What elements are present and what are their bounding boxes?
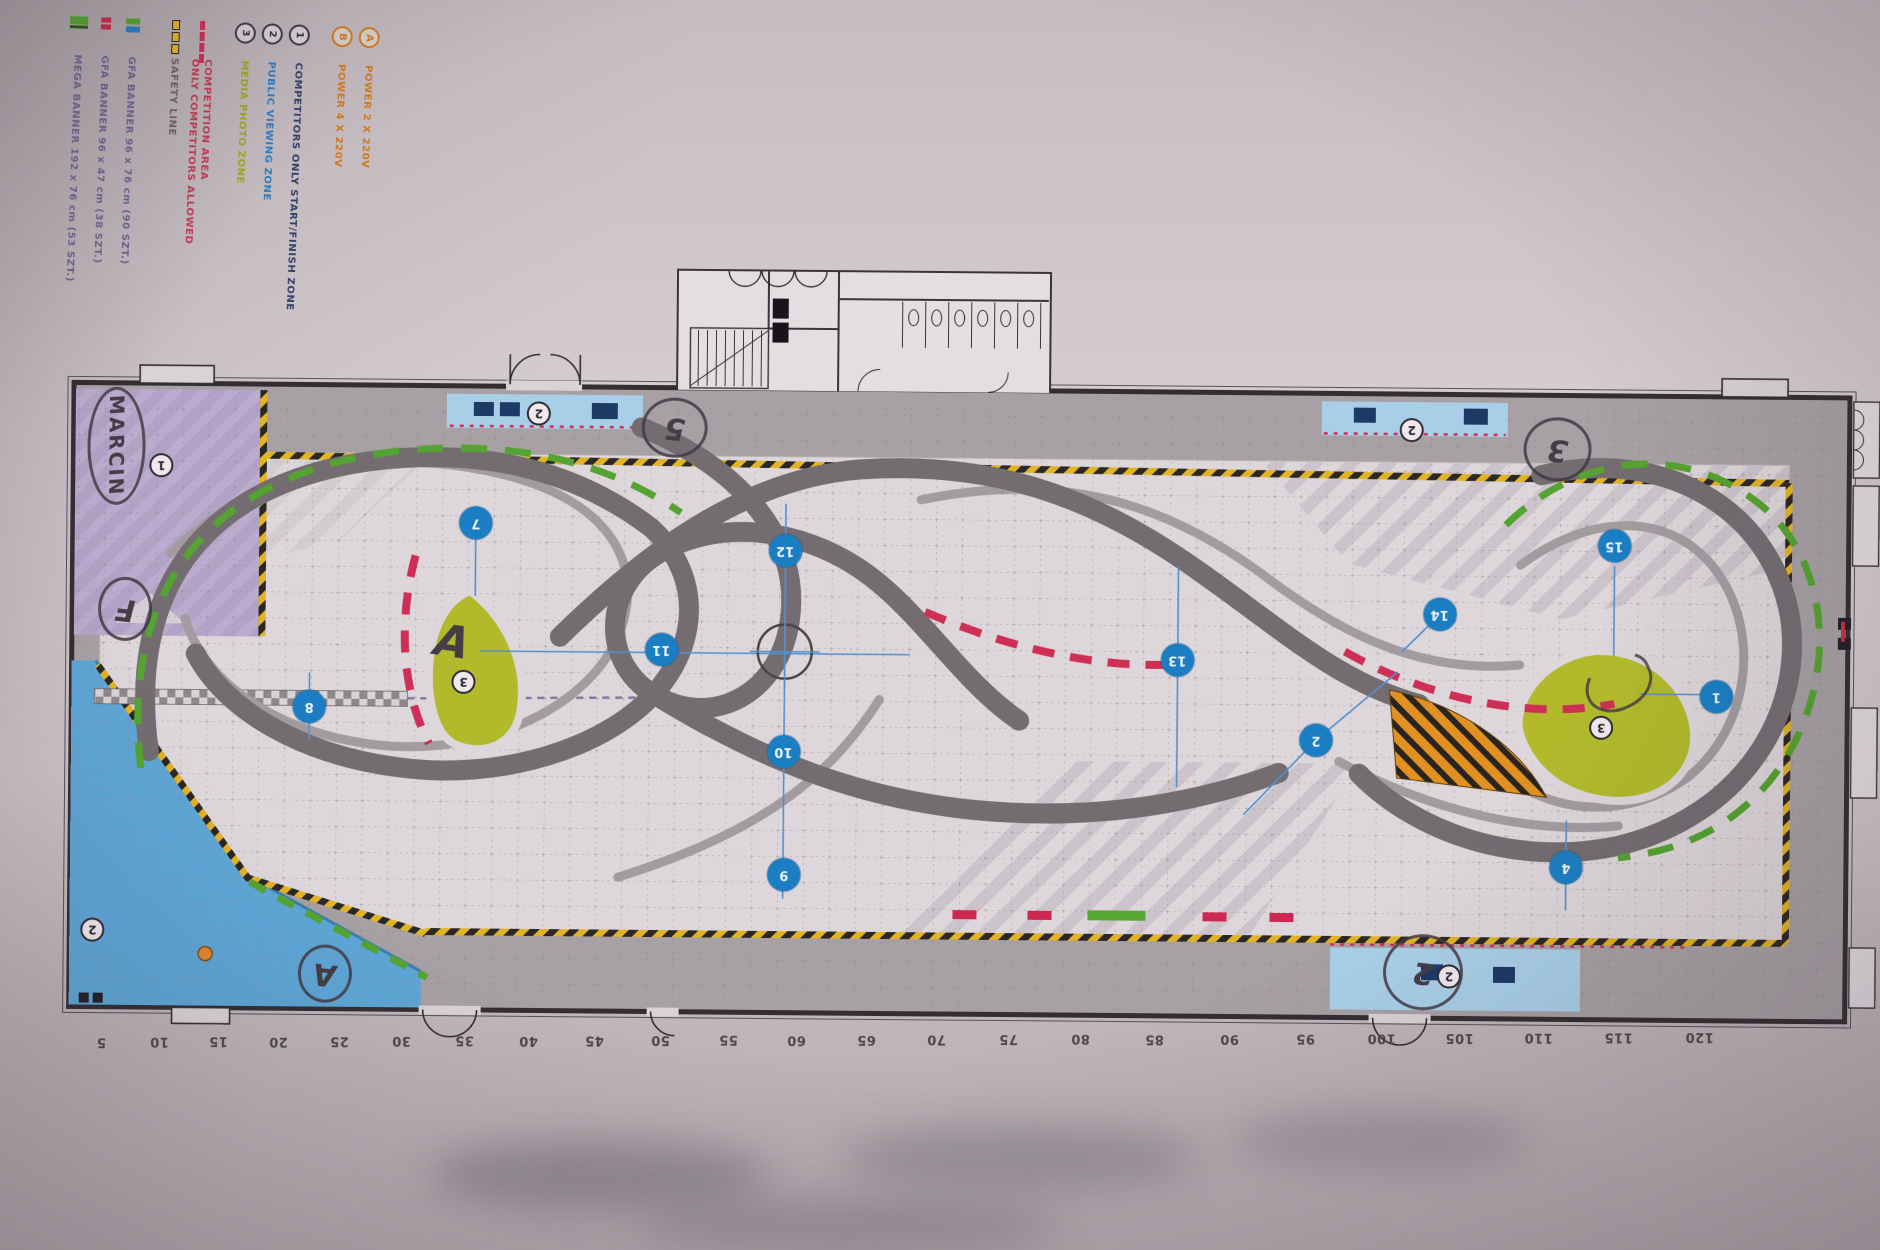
hand-annotation-2: 2 bbox=[1383, 934, 1464, 1011]
zone-badge-2: 2 bbox=[1400, 418, 1424, 442]
course-marker-10: 10 bbox=[767, 735, 800, 768]
course-marker-12: 12 bbox=[769, 534, 802, 567]
ruler-number: 70 bbox=[927, 1031, 946, 1046]
ruler-number: 25 bbox=[330, 1033, 349, 1048]
ruler-number: 5 bbox=[96, 1034, 106, 1049]
zone-badge-1: 1 bbox=[149, 453, 173, 477]
legend-label: PUBLIC VIEWING ZONE bbox=[260, 61, 278, 201]
ruler-number: 10 bbox=[150, 1034, 169, 1049]
hand-annotation-5: 5 bbox=[641, 397, 708, 458]
ruler-number: 50 bbox=[651, 1032, 670, 1047]
course-marker-4: 4 bbox=[1549, 851, 1582, 884]
zone-badge: 1 bbox=[288, 24, 310, 46]
ruler-number: 45 bbox=[585, 1032, 604, 1047]
ruler-number: 65 bbox=[857, 1032, 876, 1047]
legend-label: GFA BANNER 96 x 47 cm (38 SZT.) bbox=[90, 55, 111, 264]
safety-dash-icon bbox=[170, 20, 179, 58]
ruler-number: 60 bbox=[787, 1032, 806, 1047]
ruler-number: 110 bbox=[1524, 1030, 1553, 1045]
course-marker-2: 2 bbox=[1299, 724, 1332, 757]
gfa-banner-small-icon bbox=[99, 17, 110, 55]
legend-label: GFA BANNER 96 x 76 cm (90 SZT.) bbox=[117, 56, 138, 265]
ruler-number: 115 bbox=[1604, 1029, 1633, 1044]
legend-label: MEGA BANNER 192 x 76 cm (53 SZT.) bbox=[63, 54, 84, 282]
gfa-banner-large-icon bbox=[124, 18, 139, 56]
legend: MEGA BANNER 192 x 76 cm (53 SZT.)GFA BAN… bbox=[55, 16, 383, 314]
ruler-number: 95 bbox=[1296, 1031, 1315, 1046]
annex-building bbox=[677, 270, 1051, 393]
legend-label: SAFETY LINE bbox=[165, 58, 181, 136]
course-marker-1: 1 bbox=[1700, 680, 1733, 713]
hand-annotation-a: A bbox=[426, 614, 478, 670]
course-marker-8: 8 bbox=[293, 690, 326, 723]
ruler-number: 30 bbox=[392, 1033, 411, 1048]
ruler-number: 80 bbox=[1071, 1031, 1090, 1046]
ruler-number: 15 bbox=[209, 1033, 228, 1048]
power-badge: B bbox=[331, 26, 353, 48]
floorplan-scene: MEGA BANNER 192 x 76 cm (53 SZT.)GFA BAN… bbox=[0, 0, 1880, 1250]
zone-badge-2: 2 bbox=[527, 401, 551, 425]
mega-banner-icon bbox=[68, 16, 87, 55]
zone-badge-3: 3 bbox=[1589, 716, 1613, 740]
course-marker-15: 15 bbox=[1598, 529, 1631, 562]
zone-badge-3: 3 bbox=[451, 670, 475, 694]
ruler-number: 20 bbox=[269, 1034, 288, 1049]
ruler-number: 120 bbox=[1685, 1029, 1714, 1044]
hand-annotation-a: A bbox=[298, 944, 353, 1002]
zone-badge: 3 bbox=[234, 22, 256, 44]
hand-annotation-3: 3 bbox=[1523, 417, 1592, 482]
ruler-number: 90 bbox=[1220, 1031, 1239, 1046]
legend-label: POWER 4 X 220V bbox=[331, 64, 348, 168]
ruler-number: 100 bbox=[1367, 1030, 1396, 1045]
course-marker-14: 14 bbox=[1423, 598, 1456, 631]
power-badge: A bbox=[358, 27, 380, 49]
ruler-number: 75 bbox=[999, 1031, 1018, 1046]
course-marker-7: 7 bbox=[459, 506, 492, 539]
legend-item: SAFETY LINE bbox=[158, 20, 189, 137]
zone-badge: 2 bbox=[261, 23, 283, 45]
photo-of-track-floorplan: MEGA BANNER 192 x 76 cm (53 SZT.)GFA BAN… bbox=[0, 0, 1880, 1250]
legend-label: COMPETITORS ONLY START/FINISH ZONE bbox=[283, 62, 305, 311]
legend-item: APOWER 2 X 220V bbox=[351, 27, 383, 169]
ruler-number: 105 bbox=[1445, 1030, 1474, 1045]
ruler-number: 55 bbox=[719, 1032, 738, 1047]
hand-annotation-f: F bbox=[98, 577, 153, 641]
ruler-number: 40 bbox=[519, 1033, 538, 1048]
course-marker-9: 9 bbox=[767, 858, 800, 891]
course-marker-13: 13 bbox=[1161, 643, 1194, 676]
red-dash-icon bbox=[199, 21, 205, 59]
legend-label: MEDIA PHOTO ZONE bbox=[233, 60, 251, 184]
zone-badge-2: 2 bbox=[80, 918, 104, 942]
course-marker-11: 11 bbox=[645, 633, 678, 666]
ruler-number: 85 bbox=[1145, 1031, 1164, 1046]
ruler-number: 35 bbox=[455, 1032, 474, 1047]
legend-label: POWER 2 X 220V bbox=[358, 65, 375, 169]
